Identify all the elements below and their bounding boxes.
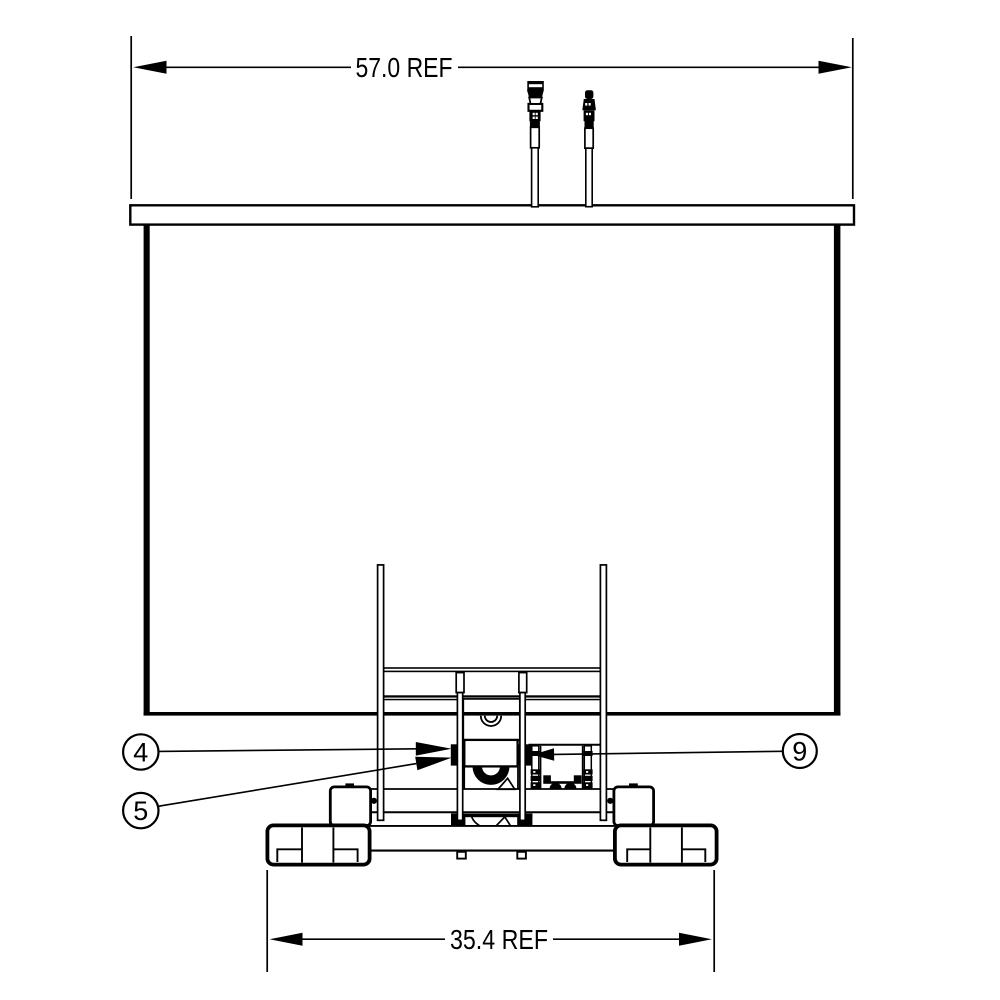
svg-text:9: 9 <box>792 737 807 767</box>
svg-text:5: 5 <box>133 796 148 826</box>
svg-text:57.0 REF: 57.0 REF <box>356 52 453 83</box>
svg-text:4: 4 <box>133 738 148 768</box>
svg-text:35.4 REF: 35.4 REF <box>450 924 548 955</box>
